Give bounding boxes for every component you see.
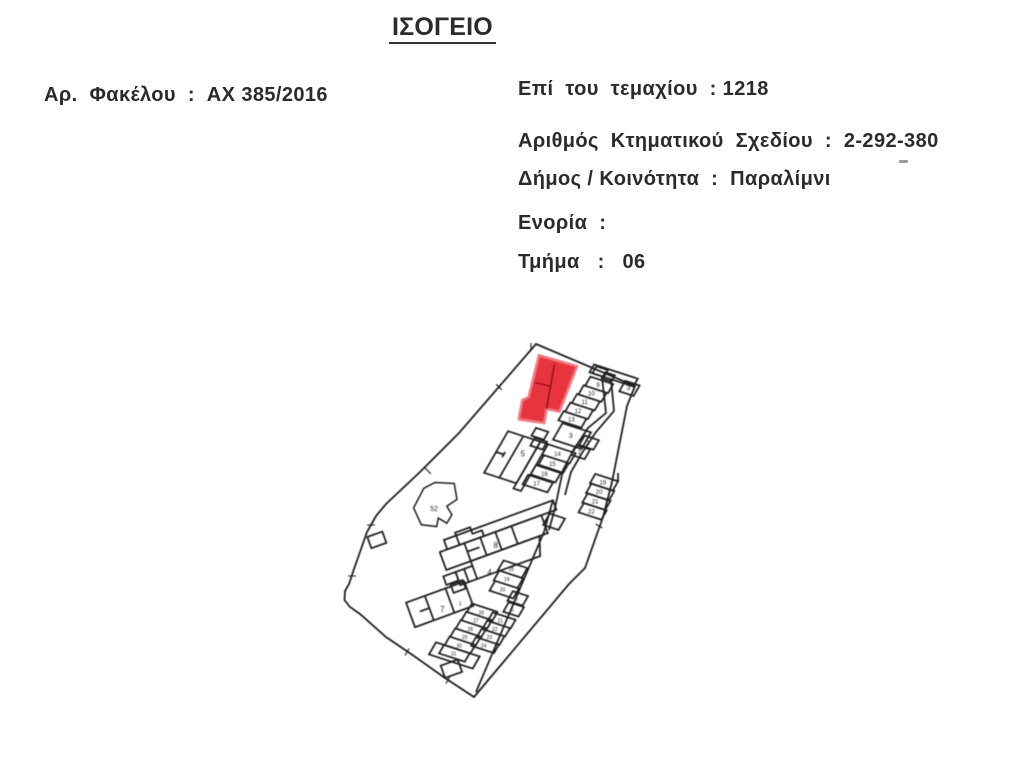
svg-text:19: 19: [504, 577, 510, 583]
svg-text:21: 21: [592, 500, 599, 506]
svg-text:3: 3: [626, 385, 630, 392]
svg-text:19: 19: [599, 480, 606, 486]
svg-text:16: 16: [541, 472, 548, 478]
svg-text:3: 3: [569, 433, 573, 440]
svg-text:28: 28: [468, 627, 474, 633]
svg-text:30: 30: [456, 643, 462, 649]
svg-text:22: 22: [588, 509, 595, 515]
svg-text:22: 22: [492, 627, 498, 633]
svg-text:11: 11: [582, 400, 589, 406]
svg-text:23: 23: [487, 635, 493, 641]
svg-text:17: 17: [533, 482, 540, 488]
svg-text:5: 5: [515, 597, 518, 603]
svg-text:24: 24: [481, 643, 487, 649]
svg-text:12: 12: [575, 409, 582, 415]
svg-text:10: 10: [588, 392, 595, 398]
svg-text:15: 15: [549, 462, 556, 468]
svg-text:27: 27: [473, 619, 479, 625]
svg-text:21: 21: [498, 619, 504, 625]
svg-text:52: 52: [430, 506, 438, 513]
svg-text:26: 26: [479, 610, 485, 616]
svg-text:6: 6: [511, 608, 514, 614]
svg-text:8: 8: [493, 541, 498, 550]
svg-text:13: 13: [568, 417, 575, 423]
svg-text:20: 20: [596, 490, 603, 496]
svg-text:7: 7: [440, 605, 445, 614]
svg-text:20: 20: [500, 588, 506, 594]
svg-text:4: 4: [487, 568, 492, 577]
svg-text:9: 9: [596, 383, 600, 389]
svg-text:31: 31: [451, 652, 457, 658]
svg-text:1: 1: [459, 601, 462, 607]
svg-text:18: 18: [508, 567, 514, 573]
svg-text:14: 14: [554, 452, 561, 458]
svg-text:5: 5: [521, 450, 526, 459]
svg-text:29: 29: [462, 635, 468, 641]
